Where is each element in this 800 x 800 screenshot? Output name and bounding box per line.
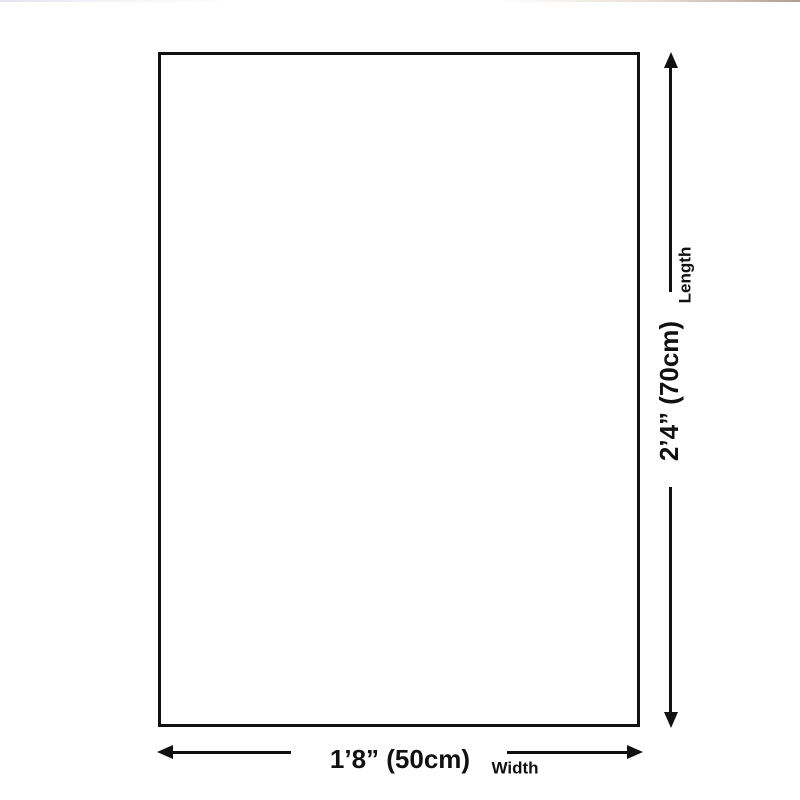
arrow-right-icon bbox=[627, 745, 643, 759]
length-label: Length bbox=[677, 247, 694, 304]
width-value: 1’8” (50cm) bbox=[330, 746, 470, 772]
length-line-lower bbox=[669, 487, 672, 715]
top-edge-artifact bbox=[0, 0, 800, 2]
width-label: Width bbox=[491, 760, 538, 777]
width-line-right bbox=[507, 751, 629, 754]
size-diagram: Length 2’4” (70cm) 1’8” (50cm) Width bbox=[0, 0, 800, 800]
length-value: 2’4” (70cm) bbox=[656, 321, 682, 461]
length-line-upper bbox=[669, 64, 672, 292]
width-line-left bbox=[170, 751, 291, 754]
arrow-down-icon bbox=[664, 712, 678, 728]
product-outline bbox=[158, 52, 640, 727]
